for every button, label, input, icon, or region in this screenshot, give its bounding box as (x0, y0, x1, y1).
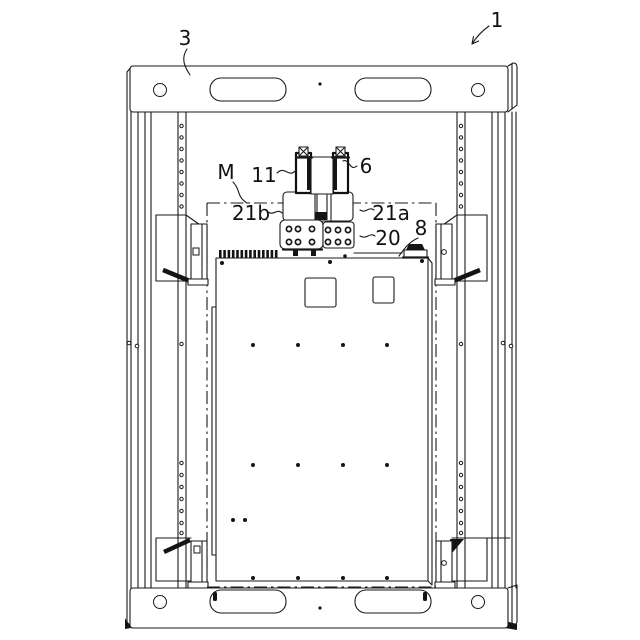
top-rail (130, 63, 517, 112)
clamp-unit (296, 147, 349, 194)
bottom-rail-slot-left (210, 590, 286, 613)
label-21b: 21b (232, 201, 282, 225)
top-rail-hole-right (472, 84, 485, 97)
bottom-rail-hole-right (472, 596, 485, 609)
corner-bracket-upper-right (435, 215, 487, 285)
label-11: 11 (251, 163, 296, 187)
leader-m (233, 182, 247, 203)
ref-number-3: 3 (179, 26, 192, 50)
bottom-rail (130, 585, 517, 628)
label-21a: 21a (360, 201, 410, 225)
corner-bracket-upper-left (156, 215, 208, 285)
connector-assembly (280, 192, 354, 258)
plate-cutout-large (305, 278, 336, 307)
top-rail-slot-right (355, 78, 431, 101)
corner-bracket-lower-left (156, 538, 208, 588)
terminal-comb-strip (219, 250, 278, 258)
ref-number-21b: 21b (232, 201, 270, 225)
label-20: 20 (360, 226, 401, 250)
ref-number-6: 6 (360, 154, 373, 178)
ref-number-1: 1 (491, 8, 504, 32)
ref-number-21a: 21a (372, 201, 410, 225)
top-rail-slot-left (210, 78, 286, 101)
bottom-rail-hole-left (154, 596, 167, 609)
label-1: 1 (472, 8, 503, 44)
left-rail-holes (180, 124, 183, 534)
bottom-rail-slot-right (355, 590, 431, 613)
ref-number-20: 20 (375, 226, 400, 250)
ref-letter-m: M (217, 160, 234, 184)
ref-number-8: 8 (415, 216, 428, 240)
figure-canvas: 1 3 M 11 6 21b 21a 20 (0, 0, 640, 640)
leader-arrow-1 (472, 26, 489, 44)
right-rail-holes (459, 124, 462, 534)
terminal-block-left (280, 220, 323, 249)
label-m: M (217, 160, 247, 203)
leader-21b (268, 211, 282, 213)
top-rail-hole-left (154, 84, 167, 97)
clamp-center-window (311, 157, 333, 194)
leader-20 (360, 235, 375, 237)
plate-cutout-small (373, 277, 394, 303)
corner-bracket-lower-right (435, 538, 510, 588)
leader-11 (277, 170, 296, 173)
patent-drawing: 1 3 M 11 6 21b 21a 20 (0, 0, 640, 640)
mounting-plate (212, 250, 432, 585)
ref-number-11: 11 (251, 163, 276, 187)
